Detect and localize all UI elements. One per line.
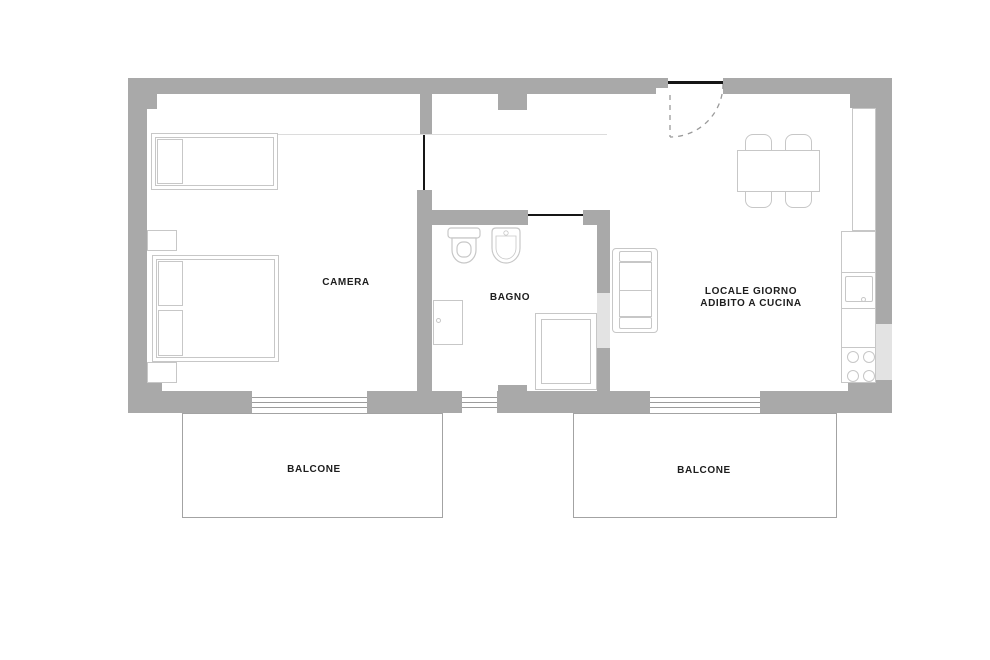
washbasin-tap (436, 318, 441, 323)
room-label-soggiorno-line2: ADIBITO A CUCINA (700, 298, 801, 310)
sofa-armrest-bottom (619, 317, 652, 329)
bathroom-sliding-door (528, 214, 583, 216)
wall-left (128, 78, 147, 413)
sofa-cushion-divider (620, 290, 651, 291)
double-bed-pillow-top (158, 261, 183, 306)
nightstand-top (147, 230, 177, 251)
nightstand-bottom (147, 362, 177, 383)
window-right-wall (876, 324, 892, 380)
kitchen-sink (845, 276, 873, 302)
wall-living-left-lower (597, 348, 610, 393)
wall-bathroom-top-right (583, 210, 610, 225)
room-label-soggiorno: LOCALE GIORNO ADIBITO A CUCINA (700, 286, 801, 310)
window-bathroom (462, 391, 497, 413)
tall-cabinet (852, 108, 876, 231)
wall-right-upper (876, 78, 892, 324)
pilaster-top-middle (498, 94, 527, 110)
wall-bottom-1 (147, 391, 252, 413)
floor-plan: CAMERA BAGNO LOCALE GIORNO ADIBITO A CUC… (0, 0, 990, 660)
room-label-bagno: BAGNO (490, 292, 530, 304)
counter-divider-3 (841, 347, 876, 348)
double-bed-pillow-bottom (158, 310, 183, 356)
counter-divider-2 (841, 308, 876, 309)
cooktop-burner-1 (847, 351, 859, 363)
cooktop-burner-3 (847, 370, 859, 382)
room-label-balcone-left: BALCONE (287, 464, 341, 476)
entrance-door-leaf (668, 81, 723, 84)
wall-living-left-upper (597, 225, 610, 293)
entrance-door-swing (670, 84, 723, 137)
single-bed-pillow (157, 139, 183, 184)
window-living (650, 391, 760, 413)
shower-tray (541, 319, 591, 384)
cooktop-burner-2 (863, 351, 875, 363)
pilaster-top-right (850, 92, 876, 108)
wall-bottom-3-notch (498, 385, 527, 391)
toilet (448, 228, 480, 263)
pilaster-top-left (147, 94, 157, 109)
wall-bottom-3 (497, 391, 650, 413)
sofa-armrest-top (619, 251, 652, 262)
dining-table (737, 150, 820, 192)
room-label-camera: CAMERA (322, 277, 370, 289)
kitchen-sink-tap (861, 297, 866, 302)
wall-top-left (128, 78, 656, 94)
room-label-soggiorno-line1: LOCALE GIORNO (700, 286, 801, 298)
window-bedroom (252, 391, 367, 413)
wall-bedroom-door-stub (420, 94, 432, 135)
wall-bottom-corner-right (848, 382, 892, 413)
counter-divider-1 (841, 272, 876, 273)
bedroom-sliding-door (423, 135, 425, 190)
wall-living-left-opening (597, 293, 610, 348)
room-label-balcone-right: BALCONE (677, 465, 731, 477)
bidet (492, 228, 520, 263)
wall-bedroom-bathroom (417, 190, 432, 393)
wall-entrance-jamb-left (656, 78, 668, 88)
cooktop-burner-4 (863, 370, 875, 382)
wall-bottom-2 (367, 391, 462, 413)
wall-bathroom-top (432, 210, 528, 225)
